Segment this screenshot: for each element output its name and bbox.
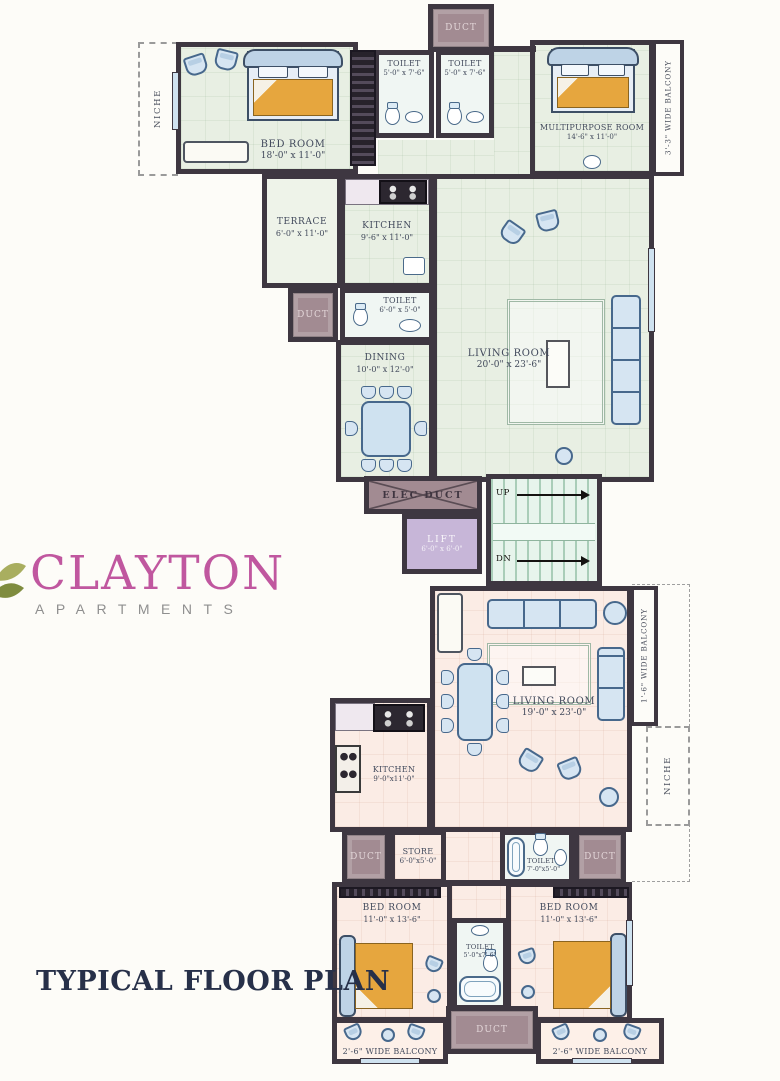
wc-icon <box>447 106 462 125</box>
duct-mid: DUCT <box>288 288 338 342</box>
chair-icon <box>556 756 584 783</box>
bed-headboard <box>610 933 627 1017</box>
room-name: BED ROOM <box>511 903 627 915</box>
toilet-store-label: TOILET 7'-0"x5'-0" <box>527 857 555 874</box>
room-store: STORE 6'-0"x5'-0" <box>390 830 446 884</box>
toilet-mid-label: TOILET 6'-0" x 5'-0" <box>371 296 429 315</box>
niche-bottom: NICHE <box>646 726 690 826</box>
room-dims: 10'-0" x 12'-0" <box>341 365 429 375</box>
dining-chair-icon <box>397 386 412 399</box>
room-name: STORE <box>395 847 441 857</box>
dining-table-icon <box>361 401 411 457</box>
room-name: TOILET <box>441 59 489 69</box>
toilet-label: TOILET 5'-0" x 7'-6" <box>379 59 429 78</box>
bedroom-top-label: BED ROOM 18'-0" x 11'-0" <box>237 138 349 163</box>
chair-icon <box>423 954 444 974</box>
niche-top-label: NICHE <box>140 44 176 174</box>
room-name: TOILET <box>379 59 429 69</box>
round-table-icon <box>603 601 627 625</box>
balcony-right: 1'-6" WIDE BALCONY <box>630 586 658 726</box>
room-toilet-mid: TOILET 6'-0" x 5'-0" <box>340 288 434 342</box>
kitchen-counter <box>335 703 375 731</box>
pillow-icon <box>598 64 626 76</box>
dining-chair-icon <box>467 743 482 756</box>
room-dims: 5'-0" x 7'-6" <box>379 69 429 78</box>
cabinet-icon <box>437 593 463 653</box>
balcony-br-label: 2'-6" WIDE BALCONY <box>541 1047 659 1057</box>
blanket <box>557 77 629 108</box>
multipurpose-label: MULTIPURPOSE ROOM 14'-6" x 11'-0" <box>535 123 649 142</box>
duct-label: DUCT <box>445 23 477 33</box>
dining-chair-icon <box>496 670 509 685</box>
room-name: LIVING ROOM <box>447 347 571 360</box>
duct-label: DUCT <box>350 852 382 862</box>
wardrobe-icon <box>553 887 629 898</box>
kitchen-top-label: KITCHEN 9'-6" x 11'-0" <box>345 221 429 243</box>
room-dims: 18'-0" x 11'-0" <box>237 151 349 163</box>
room-multipurpose: MULTIPURPOSE ROOM 14'-6" x 11'-0" <box>530 40 654 176</box>
leaf-icon <box>0 550 30 612</box>
dining-chair-icon <box>379 459 394 472</box>
living-top-label: LIVING ROOM 20'-0" x 23'-6" <box>447 347 571 372</box>
bed-icon <box>247 51 339 121</box>
wardrobe-icon <box>350 50 376 166</box>
window-icon <box>172 72 179 130</box>
dining-chair-icon <box>361 386 376 399</box>
basin-icon <box>583 155 601 169</box>
room-name: KITCHEN <box>345 221 429 233</box>
bed-icon <box>553 937 627 1013</box>
dining-chair-icon <box>441 670 454 685</box>
round-table-icon <box>381 1028 395 1042</box>
room-dims: 19'-0" x 23'-0" <box>495 708 613 720</box>
page-title: TYPICAL FLOOR PLAN <box>36 966 390 997</box>
stairs-dn-label: DN <box>496 554 511 564</box>
duct-top: DUCT <box>428 4 494 52</box>
dining-chair-icon <box>345 421 358 436</box>
stool-icon <box>555 447 573 465</box>
sink-icon <box>403 257 425 275</box>
pillow-icon <box>258 66 288 78</box>
lift: LIFT 6'-0" x 6'-0" <box>402 514 482 574</box>
bedroom-right-label: BED ROOM 11'-0" x 13'-6" <box>511 903 627 925</box>
sofa-icon <box>611 295 641 425</box>
room-kitchen-bottom: KITCHEN 9'-0"x11'-0" <box>330 698 432 832</box>
bedroom-left-label: BED ROOM 11'-0" x 13'-6" <box>337 903 447 925</box>
wc-icon <box>385 106 400 125</box>
dining-chair-icon <box>441 718 454 733</box>
toilet-bottom-label: TOILET 5'-0"x7'-6" <box>457 943 503 960</box>
brand-text: CLAYTON APARTMENTS <box>30 550 285 617</box>
stool-icon <box>599 787 619 807</box>
chair-icon <box>515 747 544 776</box>
basin-icon <box>405 111 423 123</box>
wc-icon <box>533 837 548 856</box>
chair-icon <box>213 48 239 73</box>
chair-icon <box>343 1022 365 1043</box>
room-name: LIVING ROOM <box>495 695 613 708</box>
room-bedroom-right: BED ROOM 11'-0" x 13'-6" <box>506 882 632 1022</box>
dining-chair-icon <box>441 694 454 709</box>
room-dims: 11'-0" x 13'-6" <box>337 915 447 925</box>
living-bottom-label: LIVING ROOM 19'-0" x 23'-0" <box>495 695 613 720</box>
lift-label: LIFT <box>427 535 457 545</box>
elec-duct: ELEC DUCT <box>364 476 482 514</box>
room-dims: 14'-6" x 11'-0" <box>535 133 649 142</box>
stair-landing <box>493 523 595 541</box>
room-name: BED ROOM <box>237 138 349 151</box>
dining-chair-icon <box>361 459 376 472</box>
room-dims: 6'-0"x5'-0" <box>395 857 441 866</box>
room-dims: 6'-0" x 11'-0" <box>267 229 337 239</box>
round-table-icon <box>593 1028 607 1042</box>
room-dims: 5'-0" x 7'-6" <box>441 69 489 78</box>
kitchen-bottom-label: KITCHEN 9'-0"x11'-0" <box>361 765 427 784</box>
wall-segment <box>494 46 536 52</box>
elec-duct-label: ELEC DUCT <box>382 490 463 501</box>
room-name: TOILET <box>457 943 503 952</box>
pillow-icon <box>298 66 328 78</box>
basin-icon <box>471 925 489 936</box>
room-name: TOILET <box>371 296 429 306</box>
window-icon <box>626 920 633 986</box>
stove-icon <box>373 704 425 732</box>
bathtub-icon <box>459 976 501 1002</box>
room-living-bottom: LIVING ROOM 19'-0" x 23'-0" <box>430 586 632 832</box>
bathtub-icon <box>507 837 525 877</box>
basin-icon <box>554 849 567 866</box>
stool-icon <box>427 989 441 1003</box>
balcony-top-right: 3'-3" WIDE BALCONY <box>652 40 684 176</box>
basin-icon <box>399 319 421 332</box>
chair-icon <box>405 1023 426 1043</box>
chair-icon <box>517 947 538 967</box>
hob-icon <box>335 745 361 793</box>
wc-icon <box>353 307 368 326</box>
terrace-label: TERRACE 6'-0" x 11'-0" <box>267 217 337 239</box>
chair-icon <box>497 218 526 247</box>
dining-chair-icon <box>397 459 412 472</box>
room-name: TOILET <box>527 857 555 866</box>
floor-plan-page: NICHE BED ROOM 18'-0" x 11'-0" TOILET 5'… <box>0 0 780 1081</box>
room-terrace: TERRACE 6'-0" x 11'-0" <box>262 174 342 288</box>
room-name: DINING <box>341 353 429 365</box>
chair-icon <box>535 209 561 234</box>
room-kitchen-top: KITCHEN 9'-6" x 11'-0" <box>340 174 434 288</box>
dining-label: DINING 10'-0" x 12'-0" <box>341 353 429 375</box>
balcony-right-label: 1'-6" WIDE BALCONY <box>634 590 654 722</box>
room-name: MULTIPURPOSE ROOM <box>535 123 649 133</box>
brand-name: CLAYTON <box>30 550 285 597</box>
up-arrow-icon <box>517 494 581 496</box>
room-bedroom-left: BED ROOM 11'-0" x 13'-6" <box>332 882 452 1022</box>
basin-icon <box>466 111 484 123</box>
tv-table-icon <box>522 666 556 686</box>
duct-store-right: DUCT <box>574 830 626 884</box>
wall-segment <box>444 880 506 886</box>
bed-canopy <box>243 49 343 68</box>
room-living-top: LIVING ROOM 20'-0" x 23'-6" <box>432 174 654 482</box>
room-toilet-top-left: TOILET 5'-0" x 7'-6" <box>374 50 434 138</box>
down-arrow-icon <box>517 560 581 562</box>
staircase: UP DN <box>486 474 602 586</box>
brand-subtitle: APARTMENTS <box>30 601 285 617</box>
stove-icon <box>379 180 427 204</box>
pillow-icon <box>561 64 589 76</box>
lower-hall-floor <box>444 830 502 886</box>
lift-dims: 6'-0" x 6'-0" <box>421 545 462 553</box>
room-name: 2'-6" WIDE BALCONY <box>337 1047 443 1057</box>
room-name: KITCHEN <box>361 765 427 775</box>
chair-icon <box>182 52 209 78</box>
chair-icon <box>551 1022 573 1043</box>
window-icon <box>648 248 655 332</box>
bed-icon <box>551 49 635 113</box>
bed-canopy <box>547 47 639 66</box>
room-dining: DINING 10'-0" x 12'-0" <box>336 340 434 482</box>
dining-chair-icon <box>467 648 482 661</box>
room-name: BED ROOM <box>337 903 447 915</box>
room-bedroom-top: BED ROOM 18'-0" x 11'-0" <box>176 42 358 174</box>
store-label: STORE 6'-0"x5'-0" <box>395 847 441 866</box>
window-icon <box>360 1058 420 1064</box>
sofa-icon <box>487 599 597 629</box>
wardrobe-icon <box>339 887 441 898</box>
room-dims: 7'-0"x5'-0" <box>527 866 555 874</box>
stairs-up-label: UP <box>496 488 510 498</box>
chair-icon <box>621 1023 642 1043</box>
duct-store-left: DUCT <box>342 830 390 884</box>
room-toilet-store: TOILET 7'-0"x5'-0" <box>500 830 574 884</box>
window-icon <box>572 1058 632 1064</box>
dining-chair-icon <box>379 386 394 399</box>
duct-label: DUCT <box>297 310 329 320</box>
toilet-label: TOILET 5'-0" x 7'-6" <box>441 59 489 78</box>
stool-icon <box>521 985 535 999</box>
balcony-bl-label: 2'-6" WIDE BALCONY <box>337 1047 443 1057</box>
duct-bottom: DUCT <box>446 1006 538 1054</box>
room-name: TERRACE <box>267 217 337 229</box>
upper-passage-floor <box>494 52 534 176</box>
room-toilet-bottom: TOILET 5'-0"x7'-6" <box>452 918 508 1010</box>
room-dims: 5'-0"x7'-6" <box>457 952 503 960</box>
niche-bottom-label: NICHE <box>648 728 688 824</box>
blanket <box>553 941 611 1009</box>
room-dims: 20'-0" x 23'-6" <box>447 360 571 372</box>
room-dims: 6'-0" x 5'-0" <box>371 306 429 315</box>
blanket <box>253 79 333 116</box>
room-toilet-top-right: TOILET 5'-0" x 7'-6" <box>436 50 494 138</box>
dining-chair-icon <box>414 421 427 436</box>
dining-chair-icon <box>496 718 509 733</box>
room-dims: 11'-0" x 13'-6" <box>511 915 627 925</box>
duct-label: DUCT <box>584 852 616 862</box>
room-dims: 9'-0"x11'-0" <box>361 775 427 784</box>
duct-label: DUCT <box>476 1025 508 1035</box>
balcony-label: 3'-3" WIDE BALCONY <box>656 44 680 172</box>
brand-logo: CLAYTON APARTMENTS <box>0 550 285 617</box>
dining-table-icon <box>457 663 493 741</box>
room-name: 2'-6" WIDE BALCONY <box>541 1047 659 1057</box>
room-dims: 9'-6" x 11'-0" <box>345 233 429 243</box>
